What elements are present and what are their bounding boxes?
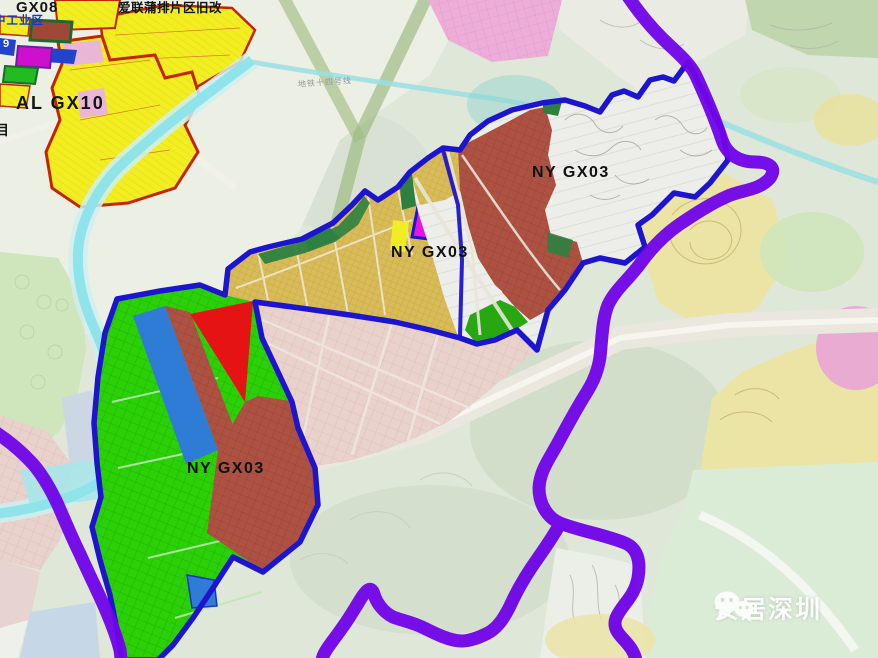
- label-ny-gx03-lower: NY GX03: [187, 461, 265, 477]
- label-ny-gx03-upper: NY GX03: [532, 165, 610, 181]
- label-industrial-area: 中工业区: [0, 16, 44, 28]
- watermark: 安居深圳: [714, 590, 822, 626]
- planning-map: GX08 爱联蒲排片区旧改 中工业区 AL GX10 目 9 地铁十四号线 NY…: [0, 0, 878, 658]
- label-partial-char: 目: [0, 123, 9, 137]
- zoning-map-canvas: [0, 0, 878, 658]
- label-parcel-digit: 9: [3, 39, 9, 50]
- label-gx08: GX08: [16, 0, 58, 15]
- label-ny-gx03-middle: NY GX03: [391, 245, 469, 261]
- magenta-parcel: [16, 46, 52, 68]
- label-ailian-renewal: 爱联蒲排片区旧改: [118, 2, 222, 15]
- label-al-gx10: AL GX10: [16, 94, 105, 112]
- wechat-logo-icon: [714, 590, 756, 624]
